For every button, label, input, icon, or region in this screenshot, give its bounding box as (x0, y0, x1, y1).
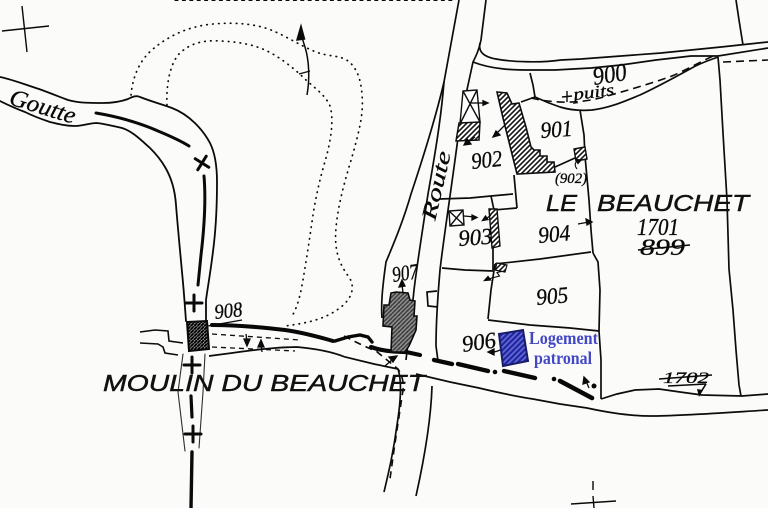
svg-text:904: 904 (537, 220, 571, 248)
svg-text:Logement: Logement (529, 328, 598, 348)
svg-text:907: 907 (390, 258, 420, 286)
svg-text:901: 901 (540, 116, 574, 143)
svg-text:908: 908 (213, 297, 244, 324)
svg-text:899: 899 (640, 235, 686, 260)
svg-text:903: 903 (458, 224, 494, 251)
svg-text:MOULIN DU BEAUCHET: MOULIN DU BEAUCHET (103, 370, 427, 396)
svg-text:905: 905 (535, 282, 569, 310)
svg-text:906: 906 (460, 327, 498, 357)
svg-text:BEAUCHET: BEAUCHET (597, 190, 751, 216)
svg-text:LE: LE (546, 190, 578, 216)
svg-text:902: 902 (470, 146, 503, 174)
svg-text:Goutte: Goutte (6, 85, 79, 130)
svg-text:puits: puits (571, 80, 616, 104)
svg-text:1702: 1702 (663, 370, 709, 387)
svg-text:(902): (902) (555, 171, 587, 187)
svg-text:patronal: patronal (534, 348, 592, 368)
